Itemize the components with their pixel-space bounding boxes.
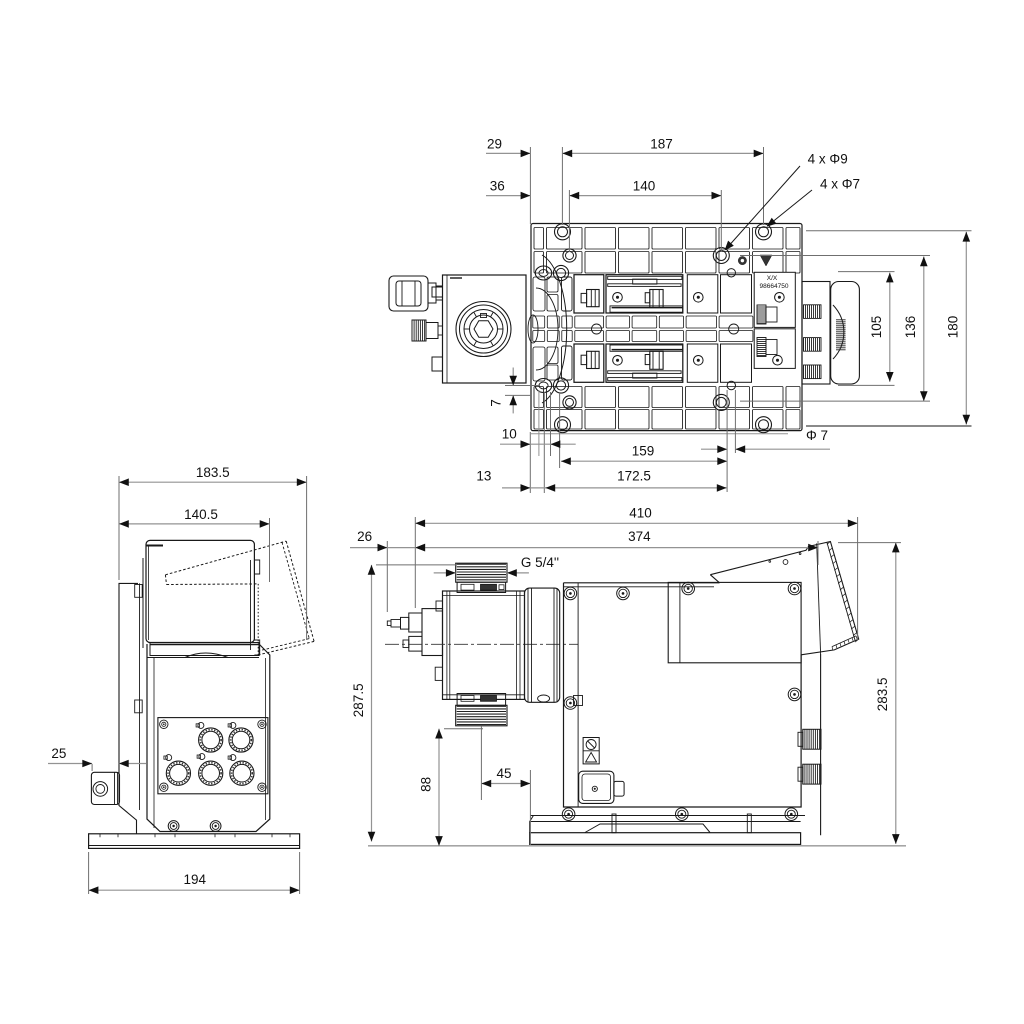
svg-text:374: 374 xyxy=(628,529,651,544)
svg-text:36: 36 xyxy=(490,179,505,194)
svg-text:105: 105 xyxy=(869,316,884,339)
svg-text:45: 45 xyxy=(496,766,511,781)
svg-text:140: 140 xyxy=(633,179,656,194)
svg-text:136: 136 xyxy=(903,316,918,339)
svg-text:10: 10 xyxy=(502,427,517,442)
svg-text:140.5: 140.5 xyxy=(184,507,218,522)
svg-text:180: 180 xyxy=(946,316,961,339)
svg-text:88: 88 xyxy=(419,777,434,792)
svg-text:287.5: 287.5 xyxy=(351,683,366,717)
svg-text:187: 187 xyxy=(650,137,673,152)
svg-text:X/X: X/X xyxy=(767,275,778,282)
svg-text:183.5: 183.5 xyxy=(196,465,230,480)
svg-text:98664750: 98664750 xyxy=(760,283,789,290)
svg-text:410: 410 xyxy=(629,506,652,521)
svg-text:13: 13 xyxy=(476,469,491,484)
svg-text:G 5/4'': G 5/4'' xyxy=(521,555,559,570)
svg-text:29: 29 xyxy=(487,137,502,152)
svg-text:Φ 7: Φ 7 xyxy=(806,428,828,443)
svg-text:172.5: 172.5 xyxy=(617,469,651,484)
svg-text:159: 159 xyxy=(632,444,655,459)
svg-text:26: 26 xyxy=(357,529,372,544)
svg-text:7: 7 xyxy=(489,399,504,407)
svg-text:194: 194 xyxy=(184,872,207,887)
svg-text:25: 25 xyxy=(51,746,66,761)
svg-text:283.5: 283.5 xyxy=(875,678,890,712)
svg-text:4 x Φ7: 4 x Φ7 xyxy=(820,177,860,192)
svg-text:4 x Φ9: 4 x Φ9 xyxy=(808,152,848,167)
